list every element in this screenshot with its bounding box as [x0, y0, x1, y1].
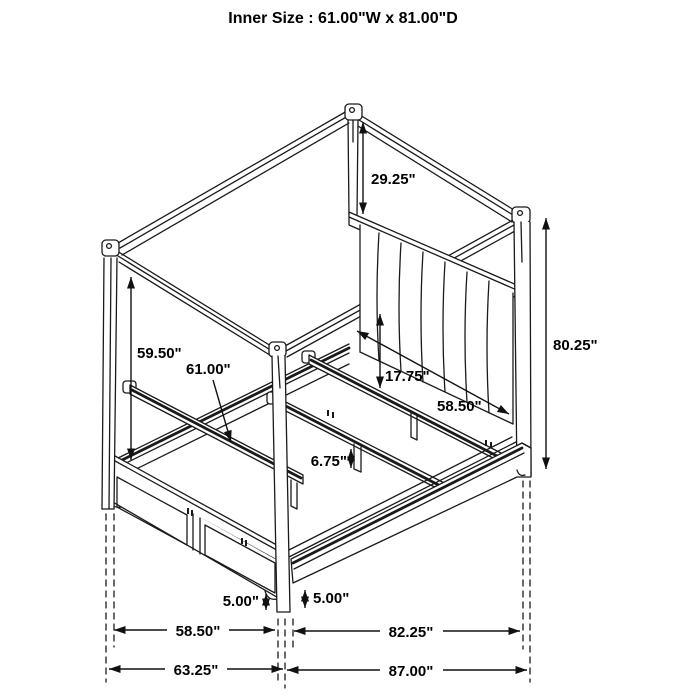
post-back [348, 120, 358, 215]
dim-footboard-width: 58.50" [114, 620, 275, 640]
dim-overall-width: 63.25" [109, 659, 283, 679]
dim-label-deck-height: 17.75" [385, 368, 430, 385]
footboard [106, 451, 284, 601]
diagram-canvas: 29.25" 80.25" 59.50" 61.00" 17.75" 58.50… [0, 0, 700, 700]
dim-overall-depth: 87.00" [287, 660, 527, 680]
dim-label-canopy-post: 29.25" [371, 171, 416, 188]
dim-siderail-length: 82.25" [294, 621, 520, 641]
dim-rail-to-canopy: 59.50" [131, 277, 182, 460]
dim-siderail-clearance: 5.00" [305, 590, 349, 608]
dim-label-inner-width: 61.00" [186, 361, 231, 378]
dim-label-siderail-length: 82.25" [389, 624, 434, 641]
dim-label-overall-width: 63.25" [174, 662, 219, 679]
dim-label-overall-depth: 87.00" [389, 663, 434, 680]
dim-label-footboard-clearance: 5.00" [223, 593, 259, 610]
page-title: Inner Size : 61.00"W x 81.00"D [228, 10, 458, 27]
dim-footboard-clearance: 5.00" [223, 593, 266, 610]
post-left [102, 258, 117, 509]
dim-label-siderail-clearance: 5.00" [313, 590, 349, 607]
dim-support-leg: 6.75" [311, 449, 351, 470]
dim-label-footboard-width: 58.50" [176, 623, 221, 640]
dim-label-support-leg: 6.75" [311, 453, 347, 470]
dim-canopy-post-height: 29.25" [363, 122, 416, 214]
dim-label-rail-to-canopy: 59.50" [137, 345, 182, 362]
post-right [514, 222, 531, 476]
dim-overall-height: 80.25" [546, 218, 598, 469]
dim-label-overall-height: 80.25" [553, 337, 598, 354]
canopy-bed-diagram: 29.25" 80.25" 59.50" 61.00" 17.75" 58.50… [0, 0, 700, 700]
dim-label-inner-rail-width: 58.50" [437, 398, 482, 415]
